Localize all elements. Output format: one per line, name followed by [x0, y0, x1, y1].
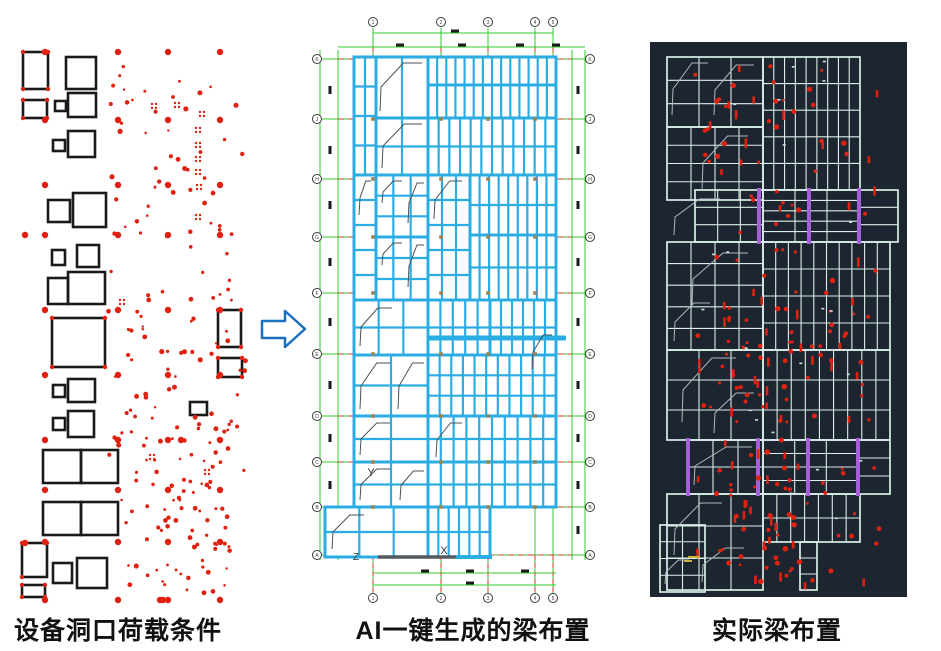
svg-text:5: 5: [552, 20, 555, 26]
svg-text:G: G: [588, 235, 592, 241]
left-caption: 设备洞口荷载条件: [4, 613, 232, 649]
svg-text:H: H: [588, 177, 592, 183]
svg-text:5: 5: [552, 596, 555, 602]
load-condition-panel: [20, 49, 248, 603]
svg-text:D: D: [315, 414, 319, 420]
right-caption: 实际梁布置: [622, 613, 932, 649]
svg-text:X: X: [440, 545, 448, 557]
ai-beam-layout-panel: 1122334455KKJJHHGGFFEEDDCCBBAAYXZ: [312, 18, 595, 603]
svg-text:D: D: [588, 414, 592, 420]
svg-text:4: 4: [534, 20, 537, 26]
svg-text:C: C: [588, 460, 592, 466]
svg-text:F: F: [315, 291, 318, 297]
svg-text:F: F: [588, 291, 591, 297]
svg-text:1: 1: [372, 596, 375, 602]
svg-text:H: H: [315, 177, 319, 183]
svg-text:Y: Y: [367, 467, 375, 479]
arrow-icon: [262, 311, 305, 347]
svg-text:3: 3: [487, 20, 490, 26]
svg-text:4: 4: [534, 596, 537, 602]
comparison-figure: 1122334455KKJJHHGGFFEEDDCCBBAAYXZ 设备洞口荷载…: [0, 0, 941, 651]
svg-text:Z: Z: [353, 552, 359, 563]
middle-caption: AI一键生成的梁布置: [318, 613, 628, 649]
svg-text:G: G: [315, 235, 319, 241]
cad-drawing-layer: 1122334455KKJJHHGGFFEEDDCCBBAAYXZ: [0, 0, 941, 651]
svg-text:C: C: [315, 460, 319, 466]
svg-text:3: 3: [487, 596, 490, 602]
svg-text:1: 1: [372, 20, 375, 26]
actual-beam-layout-panel: [650, 42, 907, 597]
svg-text:2: 2: [440, 20, 443, 26]
svg-text:2: 2: [440, 596, 443, 602]
